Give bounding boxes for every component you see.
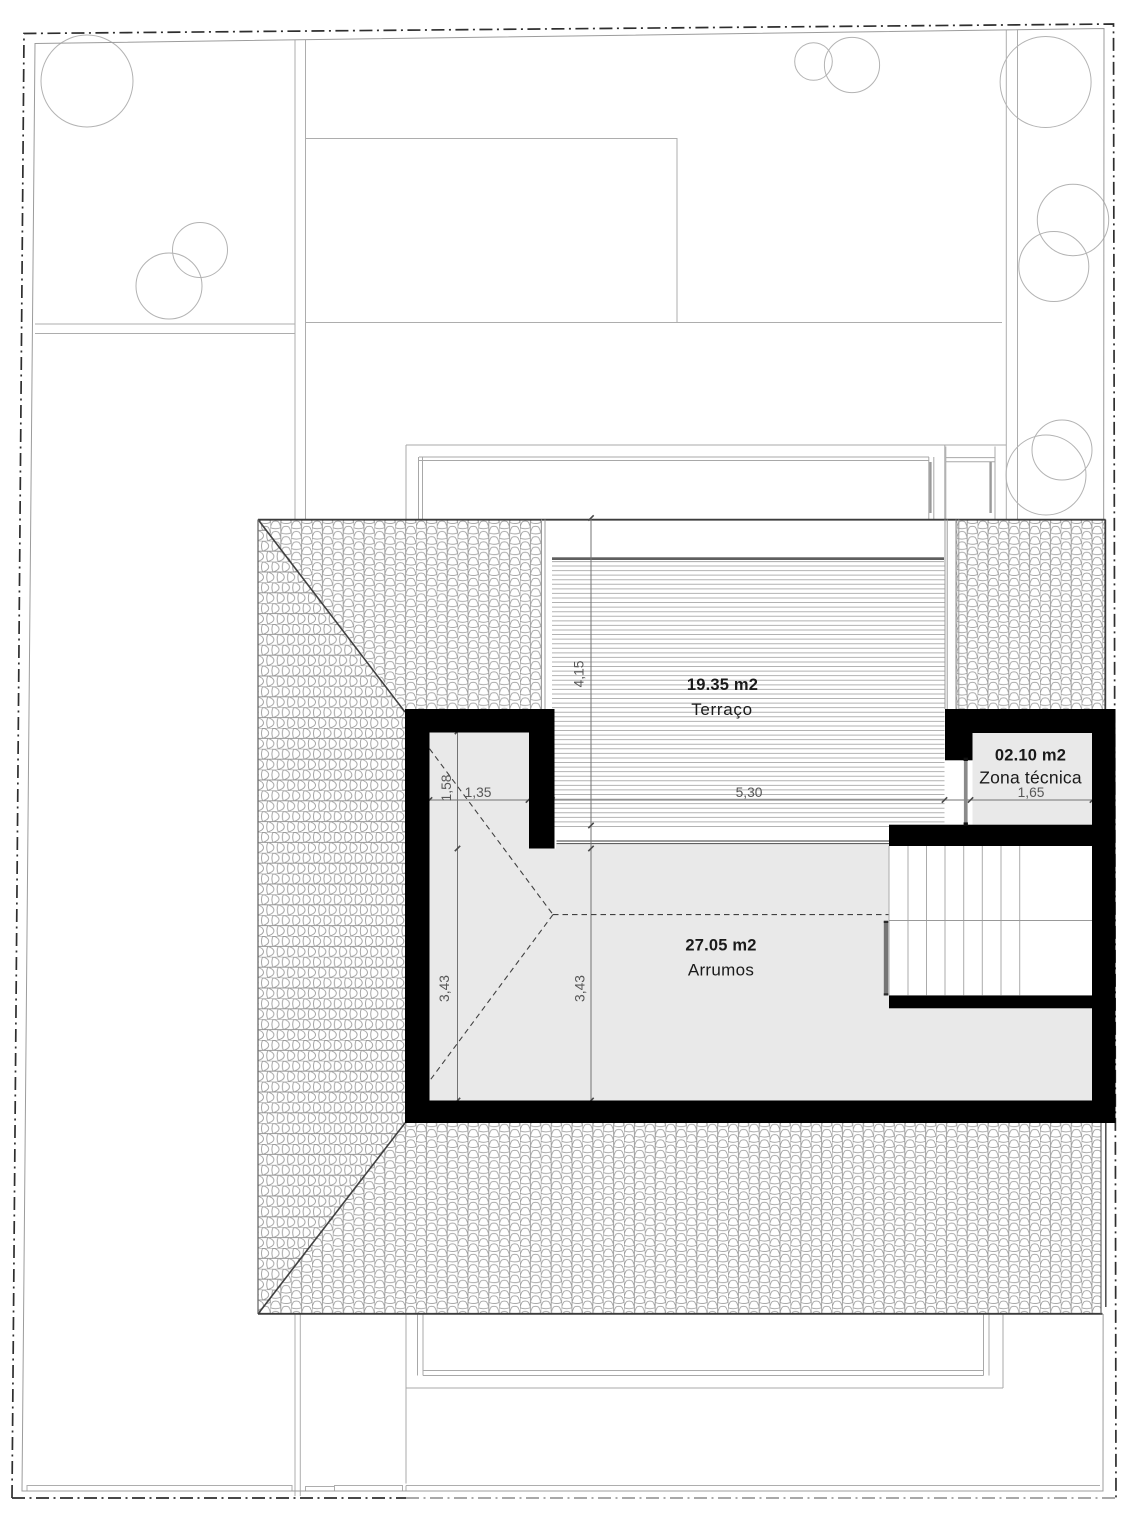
svg-text:5,30: 5,30 [736,785,763,800]
svg-text:02.10 m2: 02.10 m2 [995,747,1066,765]
svg-text:27.05 m2: 27.05 m2 [685,937,756,955]
svg-text:3,43: 3,43 [573,975,588,1002]
svg-text:3,43: 3,43 [437,975,452,1002]
svg-text:Zona técnica: Zona técnica [979,768,1082,788]
svg-text:1,35: 1,35 [465,785,492,800]
svg-text:19.35 m2: 19.35 m2 [687,676,758,694]
svg-text:1,58: 1,58 [439,774,454,801]
svg-text:Arrumos: Arrumos [688,961,754,980]
svg-text:Terraço: Terraço [691,700,753,719]
svg-text:4,15: 4,15 [572,660,587,687]
